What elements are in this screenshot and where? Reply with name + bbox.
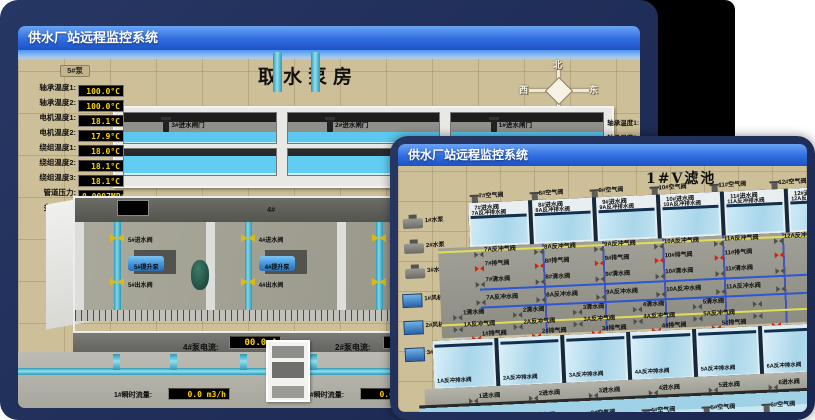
backwash-blower[interactable]: 2#风机 [403, 319, 445, 340]
filter-cell-pool: 2A反冲排水阀 [498, 335, 562, 386]
air-valve-icon [704, 408, 710, 412]
filter-cell-pool: 9#进水阀 9A反冲排水阀 [596, 195, 658, 242]
gate-valve-label: 1#进水闸门 [499, 122, 532, 129]
drain-valve-label: 2A反冲排水阀 [503, 372, 538, 382]
blower-icon [402, 293, 423, 308]
filter-cell-pool: 7#进水阀 7A反冲排水阀 [468, 200, 530, 247]
outlet-branch-pipe [240, 354, 247, 370]
valve-icon [595, 276, 604, 282]
valve-label: 5进水阀 [718, 382, 740, 389]
drain-valve-label: 6A反冲排水阀 [767, 360, 802, 370]
valve-label: 7#排气阀 [485, 260, 510, 267]
front-window-card: 供水厂站远程监控系统 1#V滤池 1#水泵 [390, 136, 815, 420]
valve-label: 4进水阀 [659, 385, 681, 392]
pool-water [662, 205, 719, 237]
valve-label: 1#排气阀 [482, 330, 507, 337]
reading-label: 绕组温度1: [24, 141, 76, 154]
valve-icon-red [535, 263, 544, 269]
valve-label: 8#排气阀 [545, 258, 570, 265]
outlet-valve-label: 4#出水阀 [259, 280, 284, 289]
air-valve-label: 7#空气阀 [479, 193, 504, 200]
backwash-pump[interactable]: 1#水泵 [403, 214, 444, 234]
reading-row: 轴承温度2:100.0°C [24, 96, 126, 111]
air-valve-label: 9#空气阀 [598, 187, 623, 194]
outlet-valve-icon[interactable] [110, 278, 124, 287]
valve-label: 11#清水阀 [725, 265, 753, 272]
valve-label: 4#排气阀 [662, 322, 687, 329]
filter-cell-pool: 11#进水阀 11A反冲排水阀 [724, 189, 786, 236]
outlet-valve-label: 5#出水阀 [128, 280, 153, 289]
reading-row: 电机温度1:18.1°C [24, 111, 126, 126]
valve-icon [536, 279, 545, 285]
drain-valve-label: 3A反冲排水阀 [569, 369, 604, 379]
reading-row: 绕组温度2:18.1°C [24, 156, 126, 171]
pump-bay: 5#进水阀 5#提升泵 5#出水阀 [75, 222, 206, 310]
compass-east: 东 [589, 83, 598, 96]
valve-label: 3#排气阀 [602, 325, 627, 332]
air-valve-label: 8#空气阀 [539, 190, 564, 197]
valve-label: 5清水阀 [703, 299, 725, 306]
filter-cell-pool: 5A反冲排水阀 [696, 326, 760, 377]
pump-icon [404, 243, 424, 254]
gate-valve-icon [163, 120, 169, 132]
reading-label: 管道压力: [24, 186, 76, 199]
outlet-branch-pipe [113, 354, 120, 370]
valve-label: 11A反冲水阀 [726, 283, 761, 291]
valve-icon [776, 286, 785, 292]
reading-row: 绕组温度1:18.0°C [24, 141, 126, 156]
air-valve-label: 10#空气阀 [658, 184, 686, 191]
valve-icon [654, 243, 663, 249]
pump-bay: 4#进水阀 4#提升泵 4#出水阀 [206, 222, 337, 310]
flow-meter-cabinet [266, 340, 310, 402]
filter-cell-pool: 10#进水阀 10A反冲排水阀 [660, 192, 722, 239]
valve-icon [596, 294, 605, 300]
intake-channel: 3#进水闸门 [123, 112, 277, 144]
valve-icon [775, 268, 784, 274]
front-window-titlebar[interactable]: 供水厂站远程监控系统 [398, 144, 807, 166]
pump5-panel-header: 5#泵 [60, 65, 90, 77]
pump5-readings-panel: 5#泵 轴承温度1:100.0°C 轴承温度2:100.0°C [24, 60, 126, 216]
valve-icon [536, 297, 545, 303]
outlet-branch-pipe [310, 354, 317, 370]
valve-label: 5#排气阀 [722, 320, 747, 327]
intake-channel [123, 148, 277, 176]
valve-label: 2进水阀 [539, 390, 561, 397]
filter-cell-pool: 12#进水阀 12A反冲排水阀 [788, 186, 807, 233]
screenshot-stage: 供水厂站远程监控系统 取水泵房 北 西 南 东 [0, 0, 815, 420]
bay-number: 4# [206, 198, 337, 222]
pool-water [471, 213, 528, 245]
valve-icon [534, 249, 543, 255]
pool-water [598, 208, 655, 240]
flow1-label: 1#瞬时流量: [114, 390, 152, 400]
valve-label: 9#清水阀 [605, 271, 630, 278]
gate-valve-icon [327, 120, 333, 132]
compass-west: 西 [519, 83, 528, 96]
inlet-valve-icon[interactable] [241, 234, 255, 243]
filter-cell-pool: 6A反冲排水阀 [762, 323, 807, 374]
reading-row: 电机温度2:17.9°C [24, 126, 126, 141]
filter-cell-pool: 1A反冲排水阀 [432, 338, 496, 389]
inlet-valve-icon[interactable] [110, 234, 124, 243]
valve-label: 7A反冲气阀 [484, 246, 516, 253]
pipe-pillar [273, 52, 282, 92]
compass-north: 北 [553, 58, 562, 71]
air-valve-label: 4#空气阀 [651, 407, 676, 412]
outlet-branch-pipe [170, 354, 177, 370]
lift-pump-label: 4#提升泵 [265, 262, 290, 271]
backwash-blower[interactable]: 1#风机 [402, 292, 444, 313]
valve-label: 10#清水阀 [665, 268, 693, 275]
pump-label: 1#水泵 [425, 217, 444, 224]
pump-icon [405, 268, 425, 279]
valve-icon [655, 273, 664, 279]
valve-label: 11#排气阀 [724, 249, 752, 256]
air-valve-label: 11#空气阀 [718, 181, 746, 188]
wall-display [117, 200, 149, 216]
reading-label: 绕组温度2: [24, 156, 76, 169]
outlet-valve-icon[interactable] [372, 278, 386, 287]
inlet-valve-label: 4#进水阀 [259, 235, 284, 244]
air-valve-label: 12#空气阀 [778, 179, 806, 186]
valve-icon [716, 289, 725, 295]
valve-label: 2#排气阀 [542, 328, 567, 335]
valve-label: 8A反冲水阀 [546, 291, 578, 298]
air-valve[interactable]: 6#空气阀 [763, 397, 807, 412]
valve-icon [454, 326, 463, 332]
valve-icon [476, 281, 485, 287]
valve-label: 9A反冲气阀 [604, 241, 636, 248]
air-valve-icon [644, 411, 650, 412]
valve-label: 6进水阀 [778, 379, 800, 386]
inlet-valve-icon[interactable] [372, 234, 386, 243]
back-window-titlebar[interactable]: 供水厂站远程监控系统 [18, 26, 640, 50]
valve-label: 8#清水阀 [545, 274, 570, 281]
reading-label: 电机温度1: [24, 111, 76, 124]
reading-row: 绕组温度3:18.1°C [24, 171, 126, 186]
reading-label: 绕组温度3: [24, 171, 76, 184]
valve-label: 9A反冲水阀 [606, 289, 638, 296]
filter-cell-pool: 8#进水阀 8A反冲排水阀 [532, 197, 594, 244]
inlet-gate-valve[interactable]: 1#进水闸门 [491, 119, 532, 137]
cabinet-panel [272, 362, 304, 378]
valve-label: 7#清水阀 [485, 276, 510, 283]
blower-icon [403, 320, 424, 335]
air-valve[interactable]: 5#空气阀 [703, 400, 764, 412]
blower-icon [405, 347, 426, 362]
valve-label: 10#排气阀 [665, 252, 693, 259]
cabinet-panel [272, 386, 304, 398]
valve-icon [774, 238, 783, 244]
drain-valve-label: 5A反冲排水阀 [701, 363, 736, 373]
valve-label: 4清水阀 [643, 301, 665, 308]
valve-icon-red [595, 260, 604, 266]
pool-water [790, 199, 807, 231]
valve-label: 9#排气阀 [605, 255, 630, 262]
air-valve-label: 3#空气阀 [591, 410, 616, 412]
clean-water-valve[interactable] [775, 259, 807, 280]
filter-pool-scene: 1#V滤池 1#水泵 2#水泵 [398, 166, 807, 412]
air-valve[interactable]: 4#空气阀 [643, 403, 704, 412]
front-window: 供水厂站远程监控系统 1#V滤池 1#水泵 [398, 144, 807, 412]
valve-label: 11A反冲气阀 [724, 235, 759, 243]
pool-water [726, 202, 783, 234]
air-valve-icon [764, 406, 770, 412]
outlet-valve-icon[interactable] [241, 278, 255, 287]
valve-gallery: 7A反冲气阀8A反冲气阀9A反冲气阀10A反冲气阀11A反冲气阀12A反冲气阀 … [438, 230, 807, 338]
front-window-title: 供水厂站远程监控系统 [408, 148, 528, 162]
valve-icon [594, 246, 603, 252]
valve-label: 1清水阀 [463, 309, 485, 316]
flow2-label: 1#瞬时流量: [306, 390, 344, 400]
pool-water [535, 211, 592, 243]
inlet-valve-label: 5#进水阀 [128, 235, 153, 244]
reading-label: 电机温度2: [24, 126, 76, 139]
gate-valve-label: 3#进水闸门 [171, 122, 204, 129]
reading-label: 轴承温度1: [607, 120, 639, 127]
valve-icon-red [775, 252, 784, 258]
filter-cell-pool: 3A反冲排水阀 [564, 332, 628, 383]
valve-icon [714, 241, 723, 247]
compass-star [545, 77, 573, 105]
gate-valve-label: 2#进水闸门 [335, 122, 368, 129]
drain-valve-label: 1A反冲排水阀 [437, 375, 472, 385]
reading-row: 轴承温度1:100.0°C [24, 81, 126, 96]
pump-icon [403, 218, 423, 229]
valve-icon-red [655, 257, 664, 263]
valve-label: 10A反冲气阀 [664, 238, 699, 246]
filter-cell-pool: 4A反冲排水阀 [630, 329, 694, 380]
valve-label: 8A反冲气阀 [544, 243, 576, 250]
gate-valve-icon [491, 120, 497, 132]
drain-valve-label: 4A反冲排水阀 [635, 366, 670, 376]
valve-label: 1进水阀 [479, 393, 501, 400]
pipe-pillar [311, 52, 320, 92]
valve-icon-red [475, 265, 484, 271]
valve-label: 3进水阀 [599, 387, 621, 394]
inlet-gate-valve[interactable]: 3#进水闸门 [163, 119, 204, 137]
flow1-value[interactable]: 0.0 m3/h [168, 388, 230, 400]
air-valve-label: 5#空气阀 [710, 404, 735, 411]
lift-pump-label: 5#提升泵 [134, 262, 159, 271]
valve-icon [715, 271, 724, 277]
reading-label: 轴承温度2: [24, 96, 76, 109]
filter-pool-3d-wrap: 1#水泵 2#水泵 3#水泵 [398, 164, 807, 412]
valve-icon [656, 291, 665, 297]
valve-label: 2清水阀 [523, 307, 545, 314]
reading-label: 轴承温度1: [24, 81, 76, 94]
valve-label: 12A反冲气阀 [784, 232, 807, 240]
inlet-gate-valve[interactable]: 2#进水闸门 [327, 119, 368, 137]
valve-icon-red [715, 255, 724, 261]
pressure-tank [191, 260, 209, 290]
valve-icon [474, 251, 483, 257]
cabinet-panel [272, 346, 304, 358]
valve-label: 10A反冲水阀 [666, 286, 701, 294]
valve-icon [476, 299, 485, 305]
back-window-title: 供水厂站远程监控系统 [28, 30, 158, 45]
air-valve-label: 6#空气阀 [770, 401, 795, 408]
valve-label: 7A反冲水阀 [486, 294, 518, 301]
valve-label: 3清水阀 [583, 304, 605, 311]
